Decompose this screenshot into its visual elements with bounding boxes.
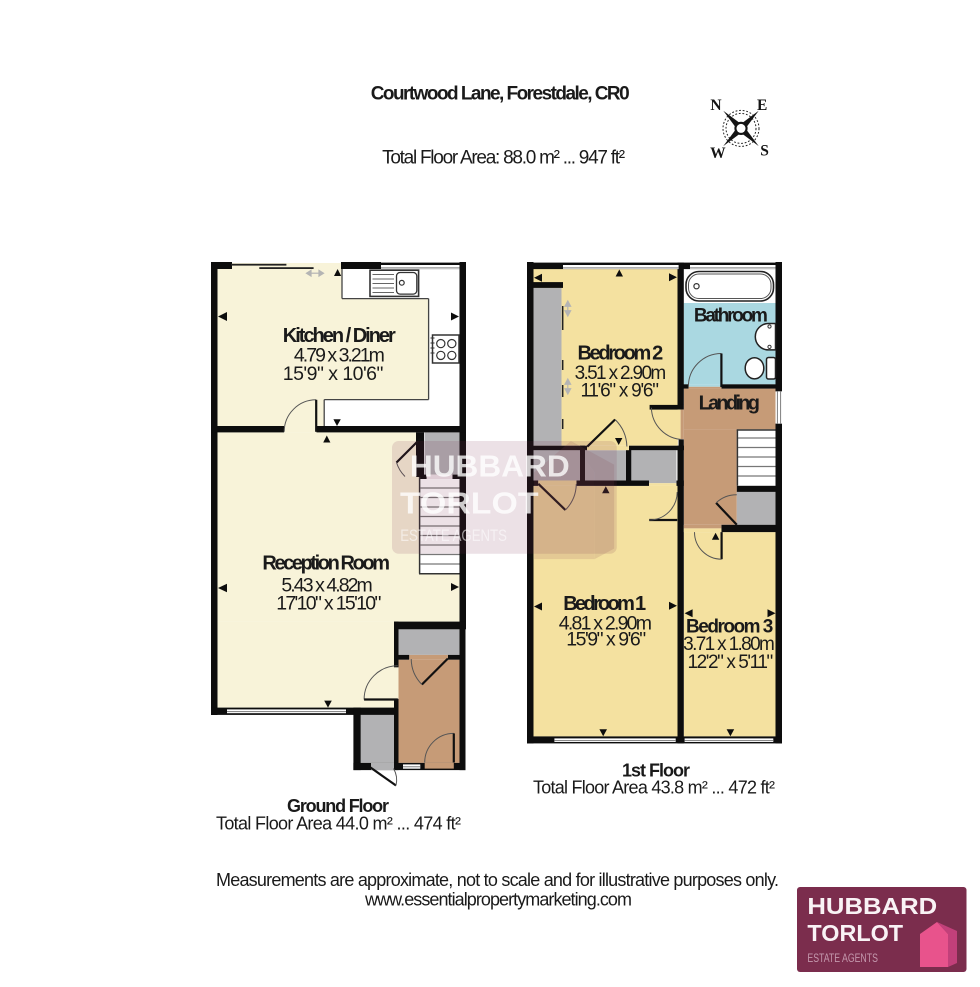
svg-text:Total Floor Area: 88.0 m² ...: Total Floor Area: 88.0 m² ... 947 ft²: [382, 148, 625, 169]
svg-text:Measurements are approximate,: Measurements are approximate, not to sca…: [216, 870, 779, 890]
svg-text:E: E: [757, 97, 767, 114]
svg-text:Bathroom: Bathroom: [694, 306, 768, 327]
svg-text:15'9" x 10'6": 15'9" x 10'6": [283, 363, 384, 385]
svg-text:Total Floor Area 43.8 m² ... 4: Total Floor Area 43.8 m² ... 472 ft²: [533, 778, 775, 798]
svg-text:TORLOT: TORLOT: [807, 920, 903, 946]
svg-text:TORLOT: TORLOT: [400, 486, 539, 520]
svg-text:12'2" x 5'11": 12'2" x 5'11": [688, 652, 774, 673]
svg-text:ESTATE AGENTS: ESTATE AGENTS: [400, 527, 507, 545]
svg-text:Landing: Landing: [699, 393, 760, 415]
svg-text:S: S: [760, 142, 769, 159]
svg-text:11'6" x 9'6": 11'6" x 9'6": [580, 381, 659, 402]
svg-text:W: W: [710, 145, 726, 162]
svg-text:N: N: [710, 97, 721, 114]
svg-text:17'10" x 15'10": 17'10" x 15'10": [276, 593, 381, 615]
svg-text:15'9" x 9'6": 15'9" x 9'6": [566, 629, 646, 651]
svg-text:ESTATE AGENTS: ESTATE AGENTS: [807, 951, 878, 965]
svg-text:Total Floor Area 44.0 m² ... 4: Total Floor Area 44.0 m² ... 474 ft²: [216, 814, 461, 834]
svg-text:Reception Room: Reception Room: [262, 553, 390, 575]
svg-text:HUBBARD: HUBBARD: [807, 893, 937, 919]
svg-text:Bedroom 2: Bedroom 2: [578, 343, 664, 365]
svg-text:Courtwood Lane, Forestdale, CR: Courtwood Lane, Forestdale, CR0: [371, 84, 630, 105]
svg-text:HUBBARD: HUBBARD: [410, 450, 570, 484]
svg-text:www.essentialpropertymarketing: www.essentialpropertymarketing.com: [364, 890, 632, 910]
